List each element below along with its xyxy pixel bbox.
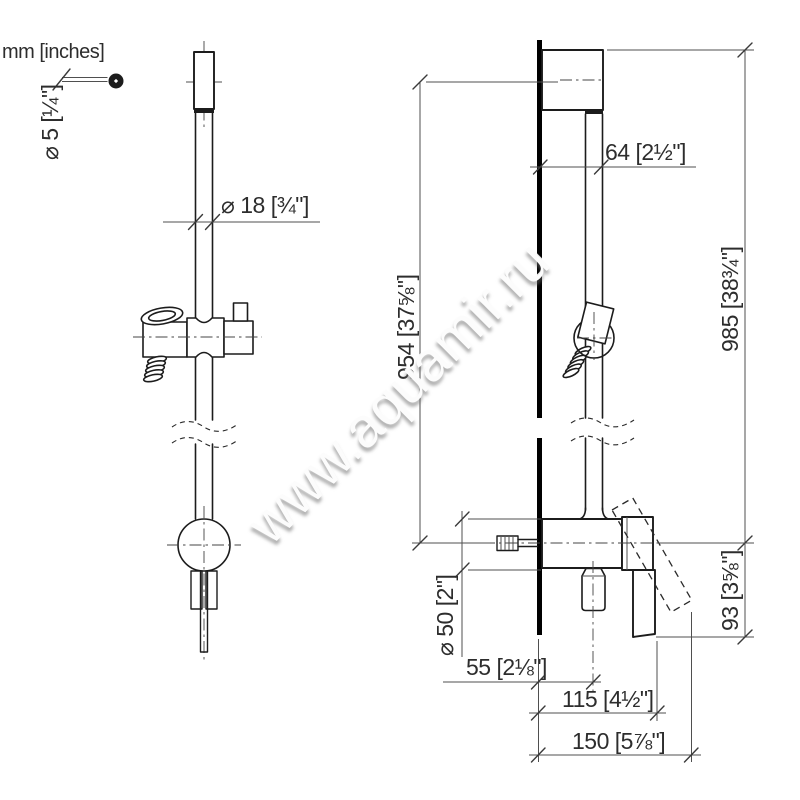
slider-holder-front: [133, 303, 262, 383]
technical-drawing-shower-rail: mm [inches] ⌀ 5 [¼"] ⌀ 18 [¾"] 64 [2½"] …: [0, 0, 800, 800]
rail-front: [196, 113, 213, 519]
dimensions: mm [inches] ⌀ 5 [¼"] ⌀ 18 [¾"] 64 [2½"] …: [2, 41, 754, 762]
outlet-spout: [582, 561, 605, 692]
mounting-screw: [53, 69, 124, 90]
mixer-body: [542, 519, 622, 568]
dim-max-projection: 150 [5⅞"]: [529, 728, 701, 762]
dim-rail-height-label: 954 [37⅝"]: [393, 275, 419, 380]
break-marks-front: [172, 422, 238, 448]
front-view: [53, 41, 262, 663]
dim-overall-height-label: 985 [38¾"]: [717, 247, 743, 352]
wall-bracket-front: [194, 52, 214, 113]
dim-wall-to-outlet-label: 55 [2⅛"]: [466, 654, 547, 680]
dim-rail-height: 954 [37⅝"]: [393, 75, 558, 550]
hose-connector-front: [167, 506, 241, 663]
dim-max-projection-label: 150 [5⅞"]: [572, 728, 665, 754]
dim-wall-to-outlet: 55 [2⅛"]: [443, 654, 601, 689]
dim-wall-to-lever: 115 [4½"]: [529, 686, 666, 720]
dim-rail-diameter-label: ⌀ 18 [¾"]: [221, 192, 309, 218]
holder-cup-body: [143, 322, 187, 357]
dim-wall-to-rail: 64 [2½"]: [530, 139, 696, 174]
hose-spring-front: [143, 355, 167, 383]
dim-escutcheon-label: ⌀ 50 [2"]: [432, 575, 458, 656]
mixer-lever: [633, 570, 655, 637]
drawing-svg: mm [inches] ⌀ 5 [¼"] ⌀ 18 [¾"] 64 [2½"] …: [0, 0, 800, 800]
dim-wall-to-lever-label: 115 [4½"]: [562, 686, 653, 712]
slider-block: [187, 318, 224, 357]
dim-rail-diameter: ⌀ 18 [¾"]: [163, 192, 320, 230]
slider-knob: [234, 303, 248, 321]
slider-lock-housing: [224, 321, 253, 354]
dim-lever-drop-label: 93 [3⅝"]: [717, 550, 743, 631]
units-label: mm [inches]: [2, 41, 104, 63]
dim-overall-height: 985 [38¾"]: [607, 43, 754, 550]
dim-screw-diameter-label: ⌀ 5 [¼"]: [37, 84, 63, 160]
dim-escutcheon-diameter: ⌀ 50 [2"]: [432, 511, 541, 657]
slider-holder-side: [562, 302, 614, 379]
dim-screw-diameter: ⌀ 5 [¼"]: [37, 84, 63, 160]
dim-wall-to-rail-label: 64 [2½"]: [605, 139, 686, 165]
dim-lever-drop: 93 [3⅝"]: [656, 543, 754, 644]
side-view: [483, 40, 692, 692]
